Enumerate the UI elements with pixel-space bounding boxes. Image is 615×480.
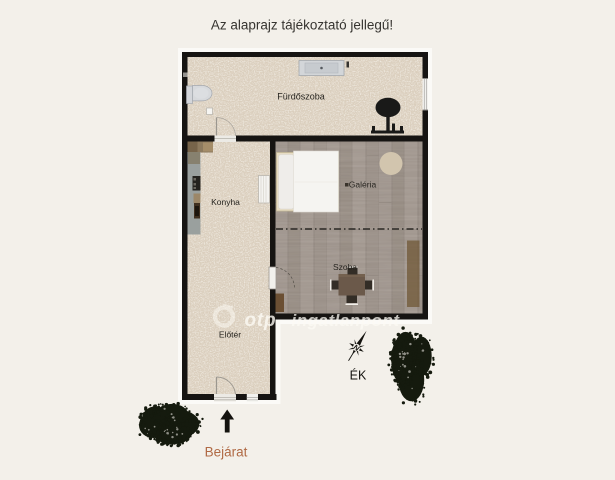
svg-text:otp: otp bbox=[245, 310, 277, 331]
svg-text:Bejárat: Bejárat bbox=[205, 445, 248, 460]
svg-text:Szoba: Szoba bbox=[333, 262, 357, 272]
svg-text:Galéria: Galéria bbox=[349, 180, 377, 190]
svg-text:Fürdőszoba: Fürdőszoba bbox=[277, 92, 325, 102]
svg-text:ÉK: ÉK bbox=[350, 368, 367, 383]
svg-text:Az alaprajz tájékoztató jelleg: Az alaprajz tájékoztató jellegű! bbox=[211, 18, 393, 33]
svg-text:Előtér: Előtér bbox=[219, 330, 241, 340]
svg-text:Konyha: Konyha bbox=[211, 197, 240, 207]
svg-text:ingatlanpont: ingatlanpont bbox=[292, 311, 401, 330]
